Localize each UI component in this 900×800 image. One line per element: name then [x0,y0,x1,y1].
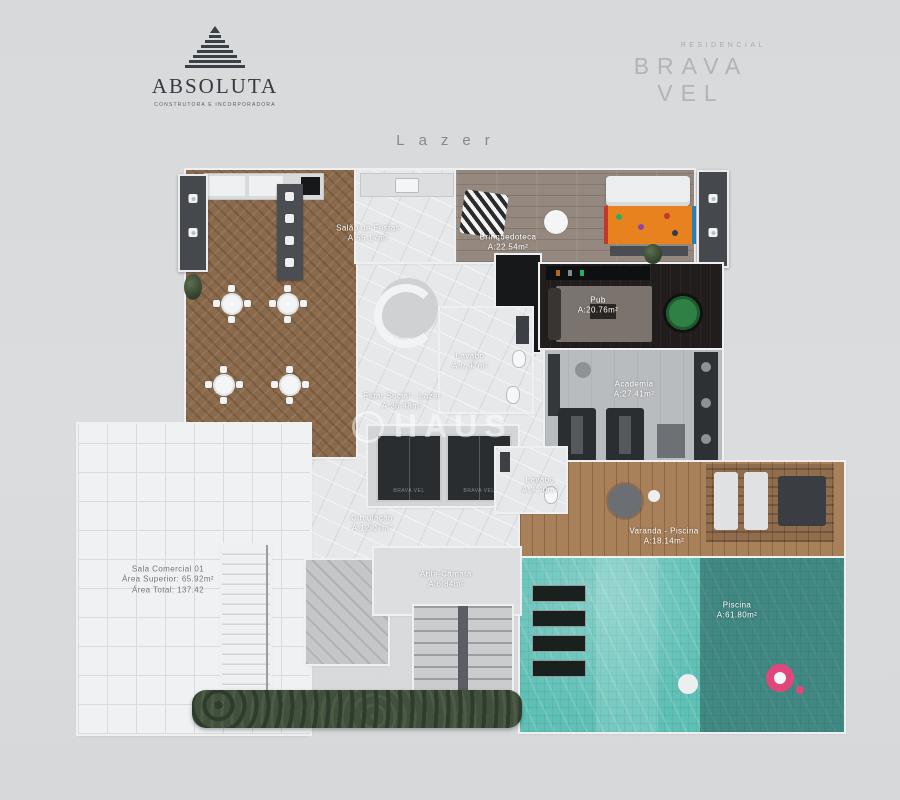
label-varanda: Varanda - Piscina A:18.14m² [629,527,698,548]
room-name: Lavabo [526,476,555,486]
room-copa [356,170,456,262]
label-salao: Salão de Festas A:55.17m² [336,224,400,245]
label-academia: Academia A:27.41m² [614,380,655,401]
room-area: Área Superior: 65.92m² [122,575,214,585]
room-pub [540,264,722,348]
brand-absoluta: ABSOLUTA CONSTRUTORA E INCORPORADORA [135,26,295,108]
room-name: Pub [590,296,605,306]
brand-brava-vel-name: BRAVA VEL [596,53,786,107]
stairs-main [414,606,512,692]
watermark-logo-icon [352,411,384,443]
sink-icon [395,178,419,193]
room-name: Brinquedoteca [480,233,537,243]
submerged-lounger [532,635,586,652]
weight-rack [548,354,560,416]
label-antecamara: Ante-Câmara A:6.84m² [420,570,472,591]
sun-lounger [714,472,738,530]
label-piscina: Piscina A:61.80m² [717,601,758,622]
cooktop-icon [301,177,320,195]
dumbbell-rack [657,424,685,458]
treadmill [606,408,644,462]
elevator-door-label: BRAVA VEL [378,488,440,494]
balcony-right [697,170,729,268]
label-brinquedoteca: Brinquedoteca A:22.54m² [480,233,537,254]
watermark: HAUS [352,408,513,445]
floor-title: Lazer [0,132,900,149]
exercise-ball-icon [575,362,591,378]
room-name: Academia [615,380,654,390]
room-name: Piscina [723,601,752,611]
room-area: A:22.54m² [488,243,529,253]
room-name: Ante-Câmara [420,570,472,580]
room-area: A:20.76m² [578,306,619,316]
vanity [516,316,529,344]
room-name: Lavabo [456,352,485,362]
plant-icon [644,244,662,264]
label-pub: Pub A:20.76m² [578,296,619,317]
dining-table [273,368,307,402]
pub-sofa [548,288,561,340]
room-area: A:3.40m² [522,486,558,496]
brand-category: RESIDENCIAL [661,42,786,49]
room-area: A:18.14m² [644,537,685,547]
dining-table [207,368,241,402]
brand-absoluta-name: ABSOLUTA [135,74,295,99]
pool-deep-end [700,558,844,732]
room-area: A:61.80m² [717,611,758,621]
hedge [192,690,522,728]
room-name: Sala Comercial 01 [132,564,204,574]
bar-shelf [546,266,650,280]
stair-rail [266,545,268,695]
play-rug [604,206,696,244]
kids-table [544,210,568,234]
deck-chair [648,490,660,502]
pool-float-icon [766,664,794,692]
room-area: Área Total: 137.42 [132,585,204,595]
zebra-rug [459,189,509,239]
plant-icon [184,274,202,300]
kitchen-counter [204,173,324,200]
pergola [706,464,834,542]
room-area: A:12.07m² [352,524,393,534]
brand-absoluta-tagline: CONSTRUTORA E INCORPORADORA [135,102,295,108]
room-name: Salão de Festas [336,224,400,234]
stair-rail [458,606,468,692]
dining-table [215,287,249,321]
room-name: Varanda - Piscina [629,527,698,537]
submerged-lounger [532,610,586,627]
room-name: Circulação [351,514,393,524]
submerged-lounger [532,660,586,677]
toilet-icon [512,350,526,368]
room-name: Estar Social - Lazer [363,392,441,402]
watermark-text: HAUS [394,408,513,445]
room-area: A:55.17m² [348,234,389,244]
absoluta-pyramid-logo-icon [185,26,245,68]
room-salao-de-festas [186,170,356,457]
lounge-rug [378,278,438,338]
deck-table [608,484,642,518]
label-circulacao: Circulação A:12.07m² [351,514,393,535]
room-piscina [520,558,844,732]
balcony-left [178,174,208,272]
stairs-commercial [222,545,270,695]
poker-table [663,293,703,333]
room-area: A:27.41m² [614,390,655,400]
sun-lounger [744,472,768,530]
sofa [606,176,690,206]
curved-sofa [374,284,438,348]
pool-float-small-icon [796,686,804,694]
equipment-rack [694,352,718,460]
vanity [500,452,510,472]
pool-table [678,674,698,694]
pool-steps [596,558,658,732]
room-area: A:6.84m² [428,580,464,590]
label-sala-comercial: Sala Comercial 01 Área Superior: 65.92m²… [122,564,214,595]
room-area: A:9.97m² [452,362,488,372]
submerged-lounger [532,585,586,602]
toilet-icon [506,386,520,404]
sink-counter [360,173,454,197]
label-lavabo-1: Lavabo A:9.97m² [452,352,488,373]
room-academia [545,350,722,465]
outdoor-sofa [778,476,826,526]
dining-table [271,287,305,321]
brand-brava-vel: RESIDENCIAL BRAVA VEL [596,42,786,107]
label-lavabo-2: Lavabo A:3.40m² [522,476,558,497]
